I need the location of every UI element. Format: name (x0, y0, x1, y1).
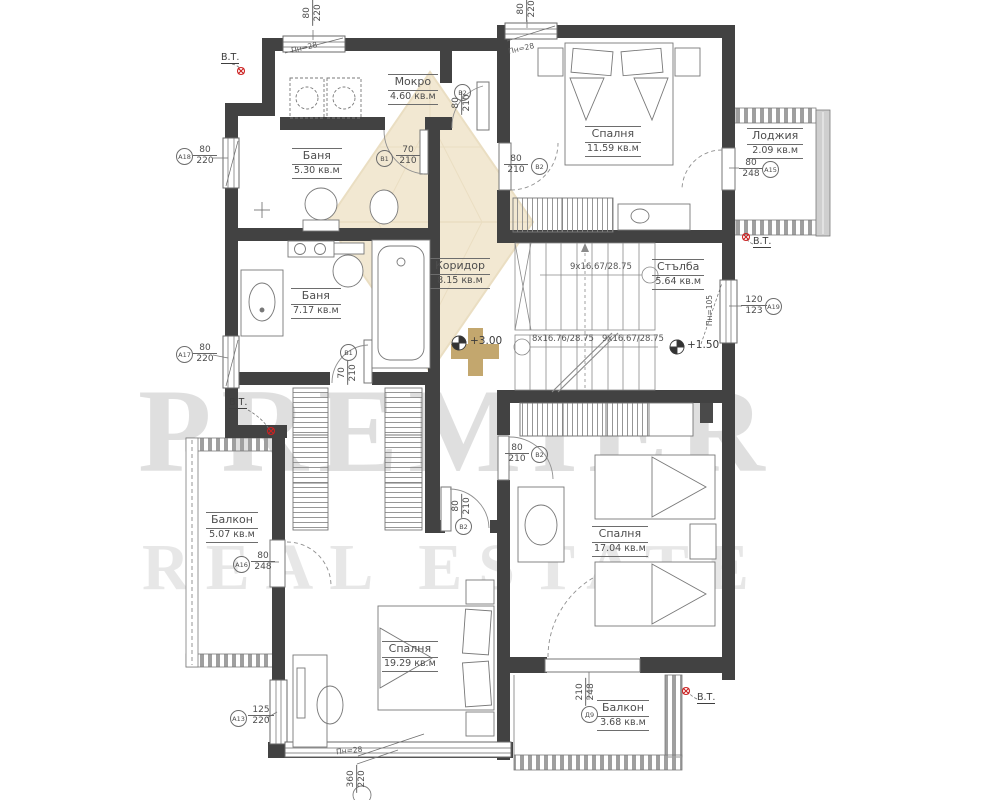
pn-label-a19: Пн=105 (705, 295, 714, 326)
tag-door-loggia: А15 (762, 161, 779, 178)
tag-door-balcony-bottom: Д9 (581, 706, 598, 723)
tag-door-bedroom-right: В2 (531, 446, 548, 463)
stair-run-right-label: 9x16.67/28.75 (602, 334, 664, 344)
room-label-balcony-bottom: Балкон3.68 кв.м (597, 700, 649, 731)
dim-window-a19: 120123 (741, 295, 767, 317)
stair-run-left-label: 8x16.76/28.75 (532, 334, 594, 344)
dim-window-bottom: 360220 (346, 765, 368, 793)
tag-window-a18: А18 (176, 148, 193, 165)
dim-window-a18: 80220 (193, 145, 217, 167)
tag-door-mokro: В2 (454, 84, 471, 101)
vt-label-top-left: В.Т. (221, 52, 239, 64)
dim-window-top-right: 80220 (516, 0, 538, 22)
dim-door-bedroom-top: 80210 (504, 154, 528, 176)
dim-door-bedroom-bottom: 80210 (451, 494, 473, 518)
tag-door-balcony-left: А16 (233, 556, 250, 573)
room-label-stairs: Стълба5.64 кв.м (652, 259, 704, 290)
room-label-bedroom-top: Спалня11.59 кв.м (585, 126, 641, 157)
dim-door-balcony-left: 80248 (251, 551, 275, 573)
vt-label-mid-left: В.Т. (229, 397, 247, 409)
tag-door-bath-1: В1 (376, 150, 393, 167)
vt-label-loggia: В.Т. (753, 236, 771, 248)
tag-window-a17: А17 (176, 346, 193, 363)
room-label-bath-2: Баня7.17 кв.м (291, 288, 341, 319)
level-stair-label: +1.50 (687, 339, 719, 351)
tag-window-a13: А13 (230, 710, 247, 727)
dim-window-top-left: 80220 (302, 0, 324, 26)
dim-door-loggia: 80248 (739, 158, 763, 180)
room-label-bedroom-bottom: Спалня19.29 кв.м (382, 641, 438, 672)
vt-label-bottom-right: В.Т. (697, 692, 715, 704)
floor-plan: PREMIER REAL ESTATE (0, 0, 1000, 800)
room-label-bedroom-right: Спалня17.04 кв.м (592, 526, 648, 557)
stair-run-top-label: 9x16.67/28.75 (570, 262, 632, 272)
dim-door-bath-1: 70210 (396, 145, 420, 167)
room-label-loggia: Лоджия2.09 кв.м (747, 128, 803, 159)
tag-door-bedroom-top: В2 (531, 158, 548, 175)
tag-window-a19: А19 (765, 298, 782, 315)
room-label-balcony-left: Балкон5.07 кв.м (206, 512, 258, 543)
dim-door-balcony-bottom: 210248 (575, 678, 597, 706)
room-label-mokro: Мокро4.60 кв.м (388, 74, 438, 105)
tag-door-bedroom-bottom: В2 (455, 518, 472, 535)
dim-door-bath-2: 70210 (337, 361, 359, 385)
tag-door-bath-2: В1 (340, 344, 357, 361)
level-corridor-label: +3.00 (470, 335, 502, 347)
dim-door-bedroom-right: 80210 (505, 443, 529, 465)
room-label-bath-1: Баня5.30 кв.м (292, 148, 342, 179)
plan-drawing (0, 0, 1000, 800)
dim-window-a17: 80220 (193, 343, 217, 365)
room-label-corridor: Коридор8.15 кв.м (430, 258, 490, 289)
dim-window-a13: 125220 (248, 705, 274, 727)
